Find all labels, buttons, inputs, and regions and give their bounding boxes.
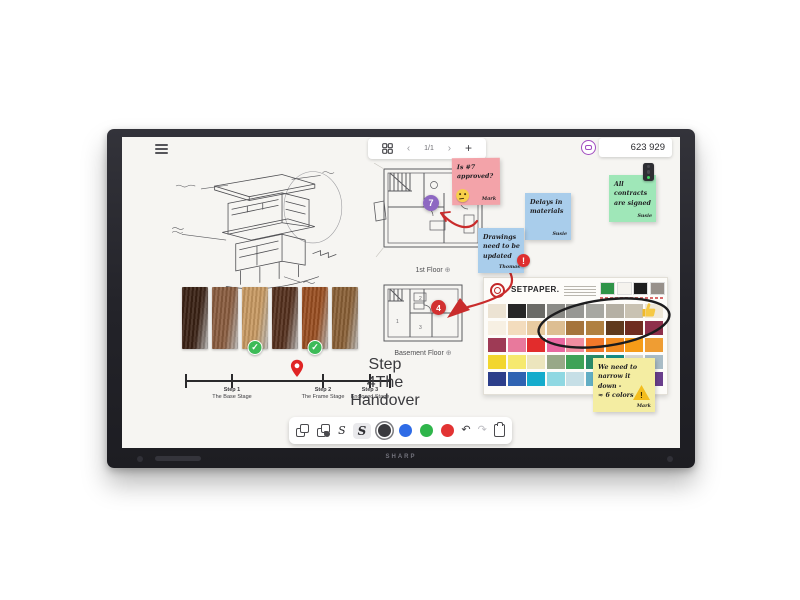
- note-author: Susie: [637, 213, 652, 219]
- palette-swatch: [488, 372, 506, 386]
- palette-swatch: [586, 321, 604, 335]
- bold-pen-tool-selected[interactable]: S: [353, 423, 372, 439]
- note-author: Mark: [637, 403, 651, 409]
- exclamation-badge-icon: !: [517, 254, 530, 267]
- palette-swatch: [586, 338, 604, 352]
- clipboard-icon[interactable]: [494, 424, 505, 437]
- setpaper-title: SETPAPER.: [511, 285, 559, 294]
- approved-check-icon: ✓: [248, 340, 263, 355]
- wood-sample[interactable]: [212, 287, 238, 349]
- wood-sample[interactable]: [182, 287, 208, 349]
- next-page-icon[interactable]: ›: [448, 144, 451, 154]
- palette-swatch: [508, 304, 526, 318]
- palette-swatch: [547, 372, 565, 386]
- palette-swatch: [527, 321, 545, 335]
- wood-sample[interactable]: [272, 287, 298, 349]
- prev-page-icon[interactable]: ‹: [407, 144, 410, 154]
- timeline-step-4: Step 4The Handover: [350, 356, 420, 410]
- approved-check-icon: ✓: [308, 340, 323, 355]
- display-chin: SHARP: [107, 448, 695, 468]
- pen-color-3[interactable]: [441, 424, 454, 437]
- setpaper-fineprint: [564, 286, 596, 298]
- palette-swatch: [508, 372, 526, 386]
- setpaper-header: SETPAPER.: [488, 282, 663, 304]
- pen-color-black-selected[interactable]: [378, 424, 391, 437]
- palette-swatch: [508, 338, 526, 352]
- wood-sample[interactable]: [332, 287, 358, 349]
- palette-swatch: [527, 304, 545, 318]
- grid-view-icon[interactable]: [382, 143, 393, 154]
- palette-swatch: [625, 321, 643, 335]
- drawing-toolbar: S S ↶ ↷: [289, 417, 512, 444]
- setpaper-header-swatches: [600, 282, 665, 295]
- palette-swatch: [547, 304, 565, 318]
- palette-swatch: [508, 355, 526, 369]
- timeline-pin-icon[interactable]: [290, 359, 304, 378]
- palette-swatch: [566, 304, 584, 318]
- palette-swatch: [606, 338, 624, 352]
- first-floor-label: 1st Floor ⊕: [372, 266, 494, 274]
- thinking-face-icon: [456, 189, 469, 202]
- room-number: 2: [419, 296, 422, 302]
- thin-pen-tool[interactable]: S: [338, 425, 346, 436]
- pen-color-dots: [378, 424, 454, 437]
- pen-color-1[interactable]: [399, 424, 412, 437]
- whiteboard-canvas[interactable]: ‹ 1/1 › + 623 929: [122, 137, 680, 448]
- room-number: 1: [396, 319, 399, 325]
- timeline-step-1: Step 1The Base Stage: [197, 387, 267, 400]
- palette-swatch: [633, 282, 648, 295]
- palette-swatch: [527, 338, 545, 352]
- palette-swatch: [606, 321, 624, 335]
- page-background: ‹ 1/1 › + 623 929: [0, 0, 800, 600]
- palette-swatch: [488, 355, 506, 369]
- setpaper-red-caption: [600, 297, 664, 299]
- pen-color-2[interactable]: [420, 424, 433, 437]
- redo-icon[interactable]: ↷: [478, 425, 487, 436]
- palette-swatch: [566, 338, 584, 352]
- palette-swatch: [527, 372, 545, 386]
- reaction-counter: 623 929: [599, 138, 672, 157]
- palette-swatch: [586, 304, 604, 318]
- wood-samples: ✓✓: [182, 287, 358, 349]
- palette-swatch: [566, 372, 584, 386]
- ir-sensor-icon: [667, 456, 673, 462]
- palette-swatch: [566, 321, 584, 335]
- room-number: 3: [419, 325, 422, 331]
- wood-sample[interactable]: ✓: [302, 287, 328, 349]
- zoom-icon[interactable]: ⊕: [446, 350, 452, 357]
- traffic-light-icon: [643, 163, 654, 181]
- note-author: Thomas: [499, 264, 520, 270]
- palette-swatch: [606, 304, 624, 318]
- note-delays[interactable]: Delays in materials Susie: [525, 193, 571, 240]
- page-navigator: ‹ 1/1 › +: [368, 138, 486, 159]
- reaction-emoji-icon[interactable]: [581, 140, 596, 155]
- palette-swatch: [488, 304, 506, 318]
- undo-icon[interactable]: ↶: [461, 425, 470, 436]
- note-approval[interactable]: Is #7 approved? Mark: [452, 158, 500, 205]
- note-drawings[interactable]: Drawings need to be updated Thomas !: [478, 228, 524, 273]
- project-timeline: Step 1The Base Stage Step 2The Frame Sta…: [180, 340, 396, 400]
- clone-pen-icon[interactable]: [317, 424, 331, 438]
- page-indicator: 1/1: [424, 145, 434, 152]
- palette-swatch: [566, 355, 584, 369]
- palette-swatch: [645, 321, 663, 335]
- display-bezel: ‹ 1/1 › + 623 929: [107, 129, 695, 468]
- palette-swatch: [625, 338, 643, 352]
- note-narrow-colors[interactable]: We need to narrow it down - ≈ 6 colors M…: [593, 358, 655, 412]
- note-author: Mark: [482, 196, 496, 202]
- house-sketch[interactable]: [162, 161, 377, 296]
- palette-swatch: [547, 355, 565, 369]
- palette-swatch: [547, 338, 565, 352]
- palette-swatch: [645, 338, 663, 352]
- menu-icon[interactable]: [155, 144, 168, 154]
- palette-swatch: [508, 321, 526, 335]
- wood-sample[interactable]: ✓: [242, 287, 268, 349]
- palette-swatch: [650, 282, 665, 295]
- basement-floor-plan[interactable]: 1 2 3: [380, 281, 466, 347]
- palette-swatch: [547, 321, 565, 335]
- thumbs-up-icon[interactable]: [641, 301, 658, 318]
- palette-swatch: [488, 321, 506, 335]
- palette-swatch: [488, 338, 506, 352]
- palette-swatch: [617, 282, 632, 295]
- zoom-icon[interactable]: ⊕: [445, 267, 451, 274]
- duplicate-icon[interactable]: [296, 424, 310, 438]
- setpaper-logo: [490, 283, 505, 298]
- palette-swatch: [527, 355, 545, 369]
- palette-swatch: [600, 282, 615, 295]
- note-author: Susie: [552, 231, 567, 237]
- brand-logo: SHARP: [107, 454, 695, 460]
- add-page-button[interactable]: +: [465, 142, 472, 154]
- map-marker-4[interactable]: 4: [431, 300, 446, 315]
- note-contracts[interactable]: All contracts are signed Susie: [609, 175, 656, 222]
- map-marker-7[interactable]: 7: [423, 195, 439, 211]
